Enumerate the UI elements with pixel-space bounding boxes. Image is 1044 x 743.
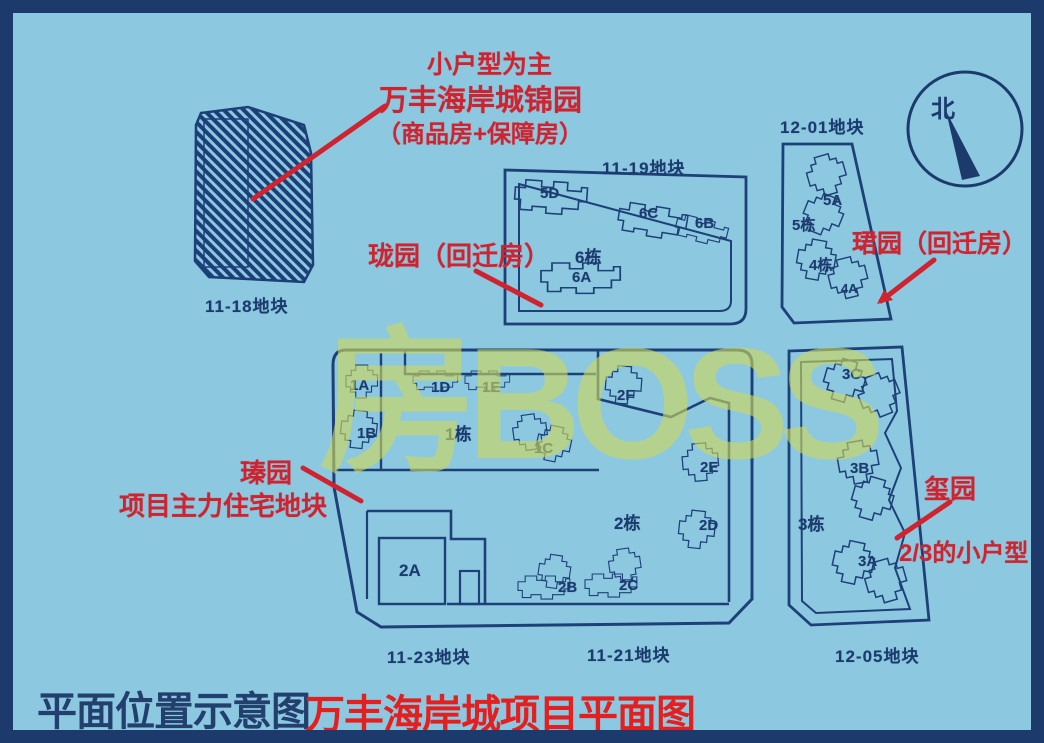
building-label-1d: 1D bbox=[431, 379, 450, 396]
plot-label-12-05: 12-05地块 bbox=[835, 642, 919, 667]
building-label-2b: 2B bbox=[558, 579, 577, 596]
building-label-3a: 3A bbox=[858, 553, 877, 570]
plot-label-11-23: 11-23地块 bbox=[387, 643, 471, 668]
annotation-xiyuan-line1: 玺园 bbox=[924, 469, 976, 506]
plot-11-23-11-21-shape bbox=[333, 350, 752, 627]
building-label-2e: 2E bbox=[700, 459, 718, 476]
plot-label-12-01: 12-01地块 bbox=[780, 113, 864, 138]
building-label-2a: 2A bbox=[399, 561, 421, 581]
building-label-1b: 1B bbox=[357, 425, 376, 442]
arrow-junyuan bbox=[881, 260, 934, 301]
building-label-4a: 4A bbox=[841, 281, 858, 296]
plot-label-11-19: 11-19地块 bbox=[602, 154, 686, 179]
building-label-3b: 3B bbox=[850, 460, 869, 477]
compass-north-label: 北 bbox=[931, 89, 955, 124]
arrow-longyuan bbox=[476, 271, 541, 305]
building-label-2c: 2C bbox=[619, 577, 638, 594]
building-label-5dong: 5栋 bbox=[792, 214, 815, 235]
plot-11-18-shape bbox=[195, 107, 313, 282]
annotation-junyuan: 珺园（回迁房） bbox=[852, 224, 1027, 260]
building-label-1a: 1A bbox=[350, 377, 369, 394]
annotation-xiyuan-line2: 2/3的小户型 bbox=[899, 533, 1028, 568]
building-label-2f: 2F bbox=[617, 387, 635, 404]
building-label-6c: 6C bbox=[639, 205, 658, 222]
building-label-6b: 6B bbox=[695, 215, 714, 232]
plot-12-05-shape bbox=[789, 347, 929, 625]
building-label-5a: 5A bbox=[823, 192, 842, 209]
building-label-1e: 1E bbox=[482, 379, 500, 396]
building-label-2dong: 2栋 bbox=[614, 509, 640, 534]
annotation-jinyuan-line3: （商品房+保障房） bbox=[377, 114, 583, 149]
annotation-zhenyuan-line1: 瑧园 bbox=[240, 453, 292, 490]
plot-label-11-18: 11-18地块 bbox=[205, 292, 289, 317]
plan-subtitle: 平面位置示意图 bbox=[37, 679, 310, 737]
annotation-jinyuan-line2: 万丰海岸城锦园 bbox=[379, 77, 582, 119]
building-label-3c: 3C bbox=[842, 366, 861, 383]
compass-icon bbox=[908, 72, 1022, 186]
building-label-3dong: 3栋 bbox=[798, 510, 824, 535]
plan-title: 万丰海岸城项目平面图 bbox=[305, 682, 695, 740]
annotation-longyuan: 珑园（回迁房） bbox=[368, 236, 550, 273]
building-label-6dong: 6栋 bbox=[575, 243, 601, 268]
plot-label-11-21: 11-21地块 bbox=[587, 641, 671, 666]
building-label-4dong: 4栋 bbox=[809, 254, 832, 275]
annotation-zhenyuan-line2: 项目主力住宅地块 bbox=[119, 486, 327, 523]
building-label-2d: 2D bbox=[699, 517, 718, 534]
annotation-jinyuan-line1: 小户型为主 bbox=[427, 45, 552, 81]
building-label-1c: 1C bbox=[534, 440, 553, 457]
scanned-site-plan: 房BOSS 北 小户型为主 万丰海岸城锦园 （商品房+保障房） 珑园（回迁房） … bbox=[0, 0, 1044, 743]
building-label-5d: 5D bbox=[540, 185, 559, 202]
building-label-1dong: 1栋 bbox=[445, 420, 471, 445]
building-label-6a: 6A bbox=[572, 269, 591, 286]
